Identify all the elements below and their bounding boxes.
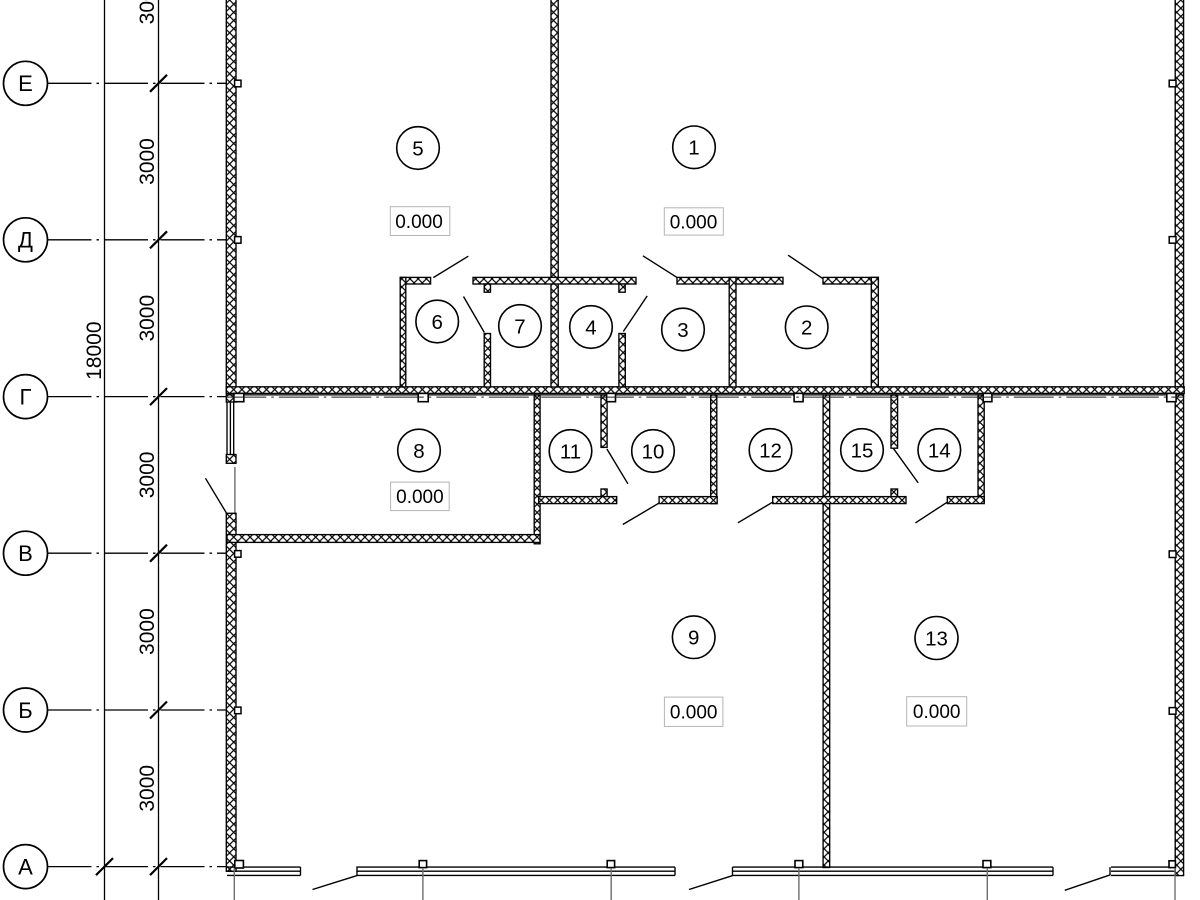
svg-text:0.000: 0.000 bbox=[670, 212, 718, 233]
svg-text:2: 2 bbox=[801, 317, 812, 340]
svg-text:7: 7 bbox=[514, 315, 525, 338]
svg-text:5: 5 bbox=[412, 137, 423, 160]
svg-text:14: 14 bbox=[928, 439, 951, 462]
svg-text:4: 4 bbox=[585, 316, 596, 339]
svg-text:0.000: 0.000 bbox=[396, 487, 444, 508]
svg-text:Д: Д bbox=[18, 228, 33, 253]
svg-text:8: 8 bbox=[413, 440, 424, 463]
svg-text:3000: 3000 bbox=[136, 295, 159, 342]
svg-text:1: 1 bbox=[688, 137, 699, 160]
svg-text:3000: 3000 bbox=[136, 765, 159, 812]
svg-text:3000: 3000 bbox=[136, 608, 159, 655]
svg-text:10: 10 bbox=[642, 440, 665, 463]
svg-text:3: 3 bbox=[677, 319, 688, 342]
svg-text:11: 11 bbox=[560, 440, 581, 463]
svg-text:Г: Г bbox=[20, 385, 32, 410]
svg-text:0.000: 0.000 bbox=[913, 702, 961, 723]
svg-text:Б: Б bbox=[18, 698, 32, 723]
svg-text:Е: Е bbox=[18, 71, 33, 96]
svg-text:А: А bbox=[18, 855, 33, 880]
svg-text:6: 6 bbox=[431, 311, 442, 334]
svg-text:13: 13 bbox=[925, 627, 948, 650]
svg-text:3000: 3000 bbox=[136, 138, 159, 185]
svg-text:3000: 3000 bbox=[136, 0, 159, 24]
svg-text:15: 15 bbox=[851, 439, 874, 462]
svg-text:9: 9 bbox=[688, 627, 699, 650]
svg-text:3000: 3000 bbox=[136, 452, 159, 499]
svg-text:0.000: 0.000 bbox=[395, 212, 443, 233]
svg-text:0.000: 0.000 bbox=[670, 703, 718, 724]
svg-text:В: В bbox=[18, 541, 33, 566]
svg-text:18000: 18000 bbox=[83, 321, 106, 379]
svg-text:12: 12 bbox=[759, 439, 782, 462]
